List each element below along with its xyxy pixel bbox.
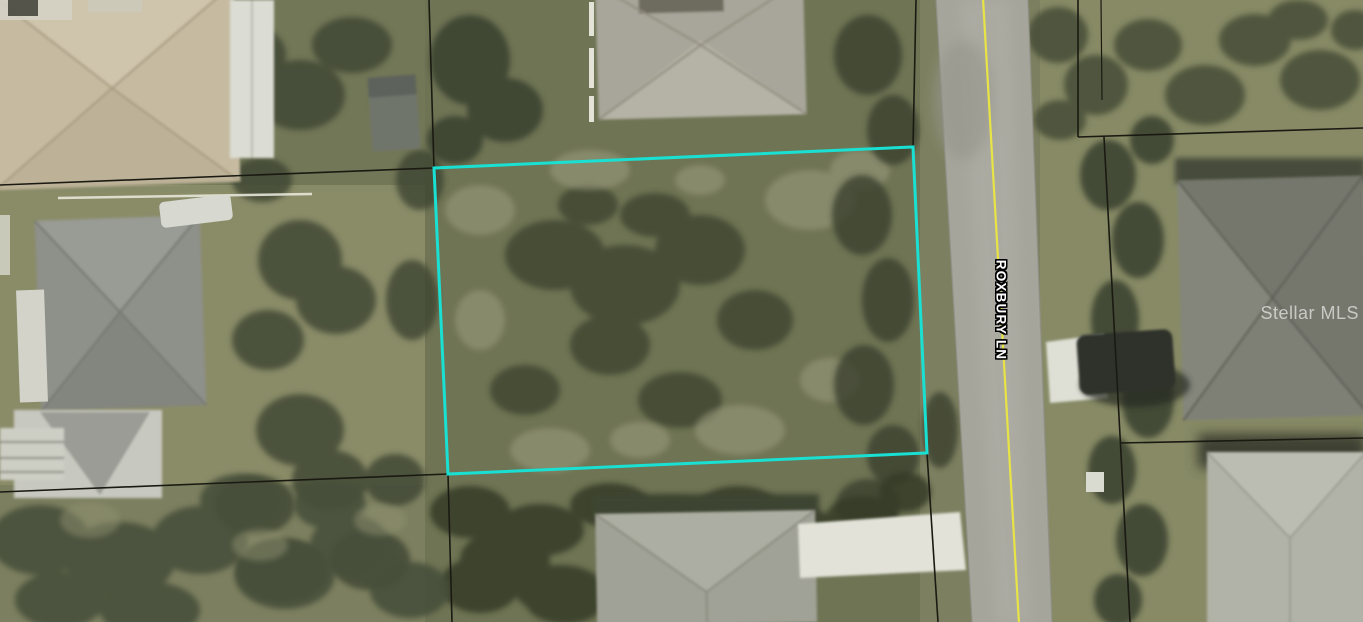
stellar-mls-watermark: Stellar MLS: [1260, 303, 1359, 324]
fence-posts-top-center: [589, 2, 594, 122]
lanai-left-house: [0, 410, 162, 498]
house-top-right: [1177, 176, 1363, 421]
pool-enclosure-top-left: [230, 0, 274, 158]
parked-car: [1076, 329, 1176, 396]
walkway-left-house: [16, 290, 48, 403]
house-top-left: [0, 0, 240, 190]
white-strip-left-edge: [0, 215, 10, 275]
aerial-photo: ROXBURY LN Stellar MLS: [0, 0, 1363, 622]
house-left-middle: [35, 215, 207, 411]
walkway-right: [1086, 472, 1104, 492]
aerial-scene: [0, 0, 1363, 622]
house-top-center: [595, 0, 806, 120]
road-name-label: ROXBURY LN: [994, 260, 1009, 361]
house-bottom-right: [1207, 452, 1363, 622]
house-bottom-center: [595, 510, 817, 622]
shed: [367, 74, 420, 151]
